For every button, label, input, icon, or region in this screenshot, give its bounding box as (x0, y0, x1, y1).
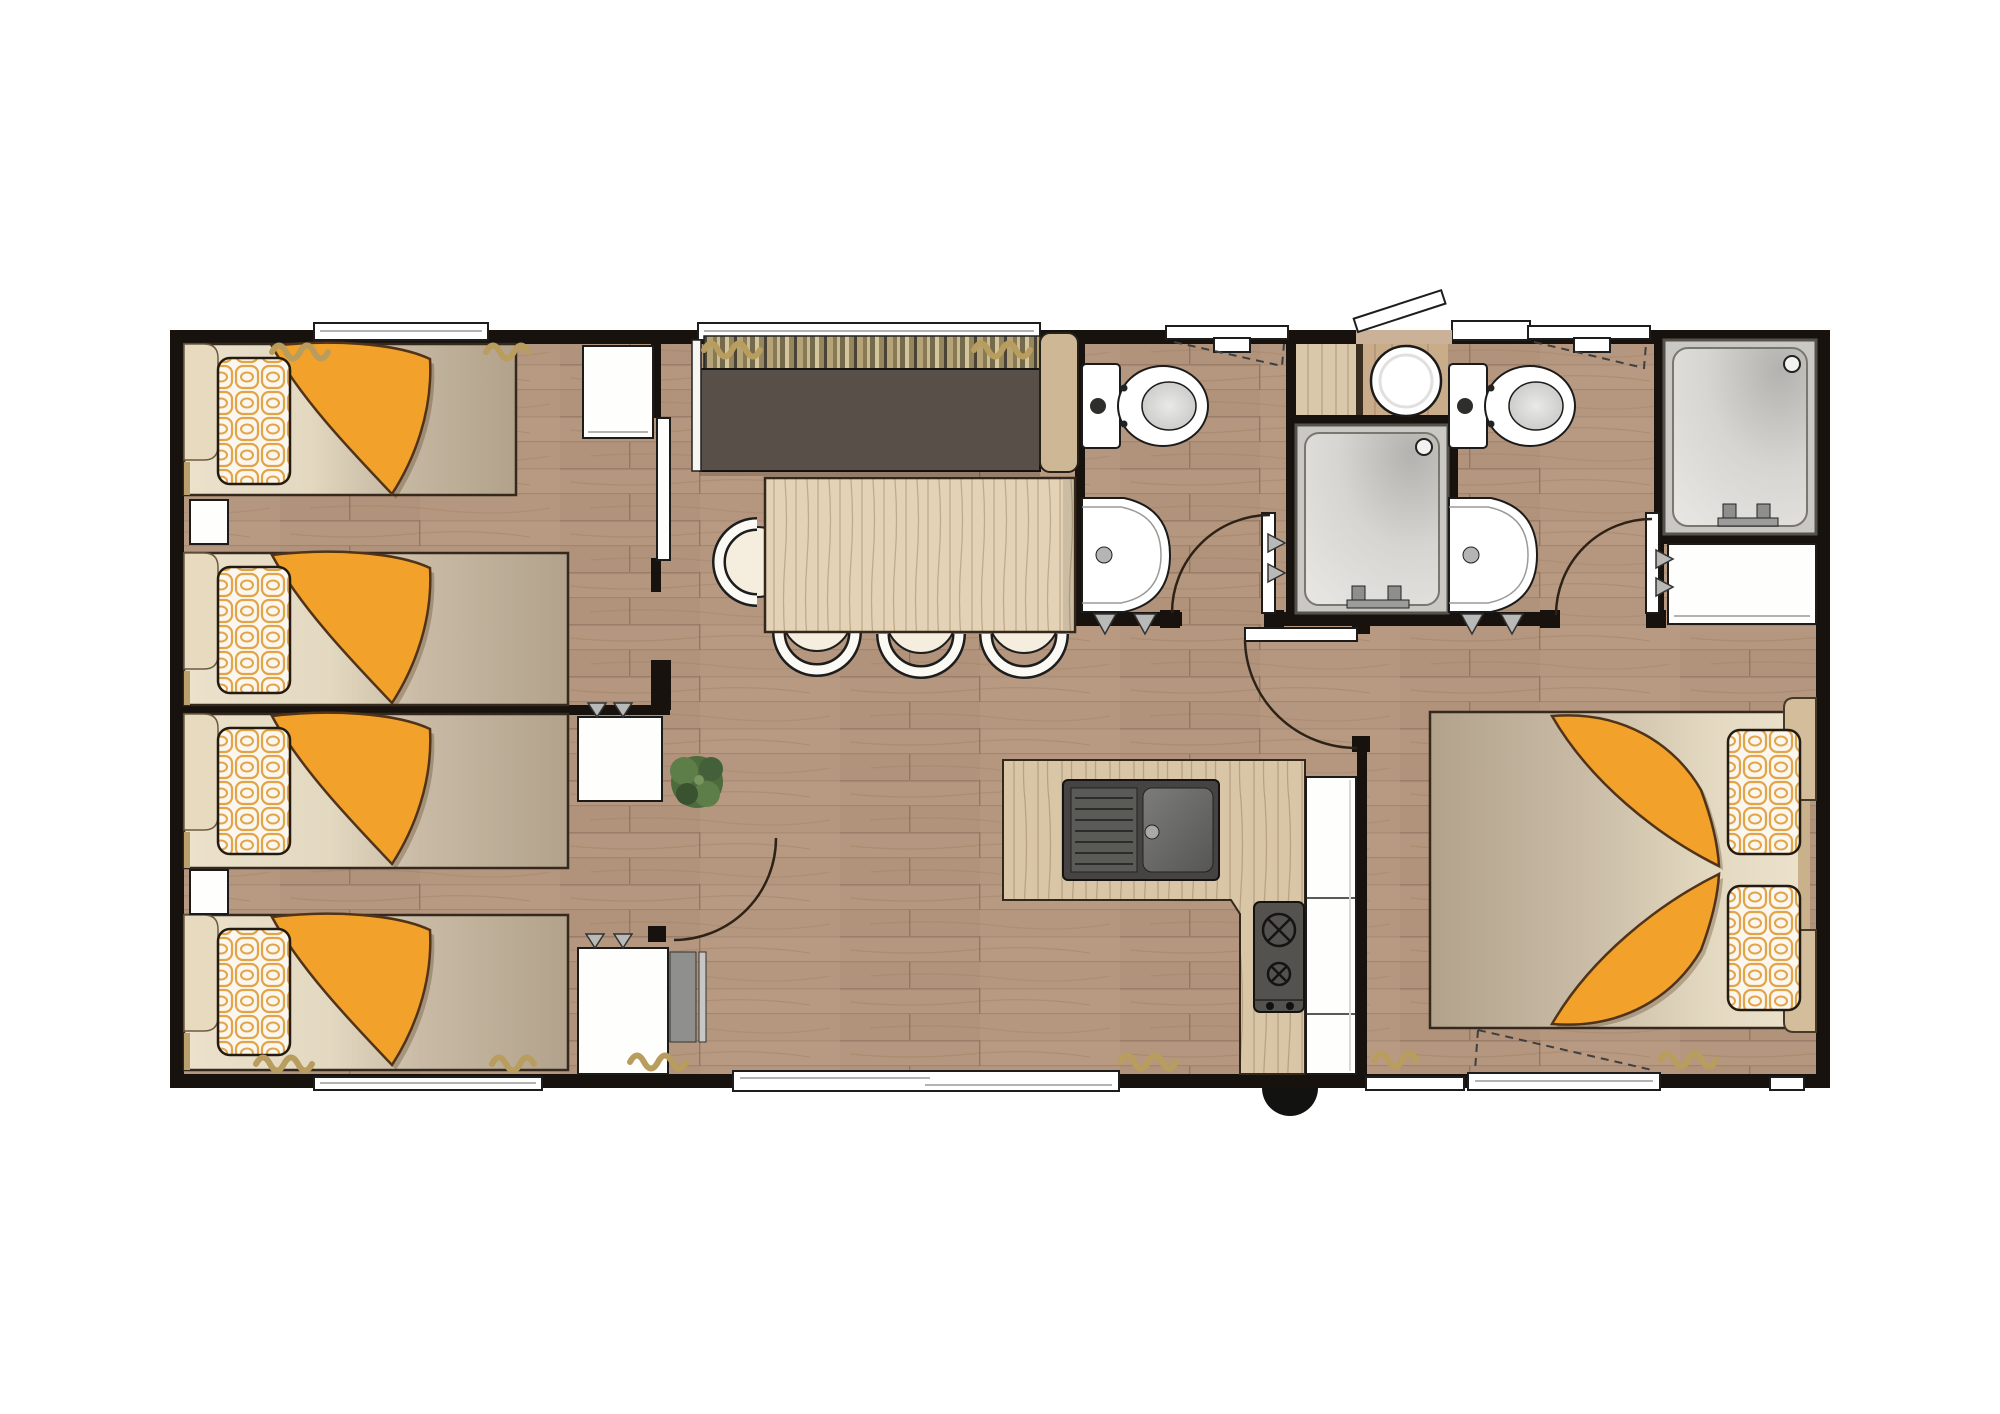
shower-tap (1757, 504, 1770, 519)
dining-table (765, 478, 1075, 632)
shower-tap (1352, 586, 1365, 601)
door-leaf-wc1 (1262, 513, 1275, 613)
entry-cabinet (1296, 344, 1363, 415)
kitchen-sink (1063, 780, 1219, 880)
floor-plan-canvas (0, 0, 2000, 1414)
window-bedroom1 (314, 323, 488, 340)
window-bedroom2 (314, 1077, 542, 1090)
hinge (648, 926, 666, 942)
french-door-master (1468, 1073, 1660, 1090)
wardrobe-dressing (1656, 544, 1816, 624)
shower-tap (1388, 586, 1401, 601)
patio-sliding-door (733, 1071, 1119, 1091)
toilet (1449, 364, 1575, 448)
pillow (218, 358, 290, 484)
headboard-shelf (184, 915, 218, 1031)
flush-button (1457, 398, 1473, 414)
single-bed (184, 343, 516, 499)
basin-tap (1096, 547, 1112, 563)
hinge (1160, 610, 1180, 628)
pillow (218, 728, 290, 854)
central-shower-module (1296, 344, 1448, 613)
pillow (1728, 730, 1800, 854)
hinge (1352, 736, 1370, 752)
shower-cubicle (1296, 425, 1448, 613)
wardrobe (583, 346, 653, 438)
wall-master (1357, 745, 1367, 1074)
door-leaf-master (1245, 628, 1357, 641)
toilet (1082, 364, 1208, 448)
headboard-shelf (184, 344, 218, 460)
sofa-seat (700, 369, 1040, 471)
single-bed (184, 552, 568, 708)
pillow (218, 929, 290, 1055)
large-shower-cubicle (1664, 340, 1816, 534)
pillow (1728, 886, 1800, 1010)
headboard-shelf (184, 714, 218, 830)
round-basin-counter (1363, 344, 1448, 416)
flush-button (1090, 398, 1106, 414)
shower-head (1416, 439, 1432, 455)
nightstand (190, 870, 228, 914)
sliding-door-panel (657, 418, 670, 560)
pillow (218, 567, 290, 693)
headboard-shelf (184, 553, 218, 669)
tall-cabinets (1306, 777, 1356, 1074)
heater-panel (670, 952, 696, 1042)
floor-plan-drawing (0, 0, 2000, 1414)
shower-head (1784, 356, 1800, 372)
window-sidelight (1452, 321, 1530, 340)
sofa-arm-left (692, 340, 701, 471)
single-bed (184, 914, 568, 1070)
window-corner (1770, 1077, 1804, 1090)
single-bed (184, 713, 568, 869)
plant (670, 756, 723, 808)
sink-tap (1145, 825, 1159, 839)
hob-2-burner (1254, 902, 1304, 1012)
shower-tap (1723, 504, 1736, 519)
wardrobe-upper (578, 703, 662, 801)
sofa-arm-right (1040, 333, 1078, 472)
nightstand (190, 500, 228, 544)
heater-panel-trim (699, 952, 706, 1042)
basin-tap (1463, 547, 1479, 563)
window-master (1366, 1077, 1464, 1090)
wardrobe-lower (578, 934, 668, 1074)
